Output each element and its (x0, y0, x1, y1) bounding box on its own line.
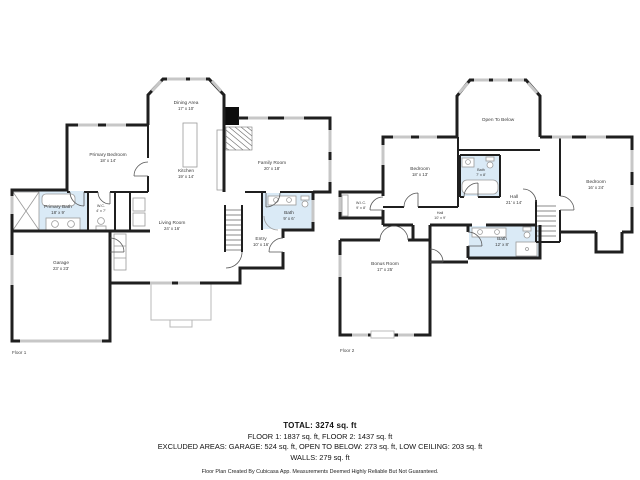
svg-text:18' x 14': 18' x 14' (100, 158, 116, 163)
svg-text:Bath: Bath (477, 168, 485, 172)
room-label-primary-bedroom: Primary Bedroom 18' x 14' (89, 152, 126, 163)
floor1-label: Floor 1 (12, 350, 27, 355)
floor-areas-text: FLOOR 1: 1837 sq. ft, FLOOR 2: 1437 sq. … (0, 432, 640, 441)
room-label-wc: W.C. 4' x 7' (96, 204, 106, 213)
room-label-bedroom-right: Bedroom 16' x 24' (586, 179, 605, 190)
svg-text:Open To Below: Open To Below (482, 117, 515, 123)
svg-text:10' x 9': 10' x 9' (434, 216, 446, 220)
floor-plan-svg: Dining Area 17' x 10' Primary Bedroom 18… (0, 0, 640, 480)
room-label-hall-left: Hall 10' x 9' (434, 211, 446, 220)
svg-text:4' x 7': 4' x 7' (96, 209, 106, 213)
svg-text:18' x 9': 18' x 9' (51, 210, 65, 215)
svg-text:W.C.: W.C. (97, 204, 105, 208)
svg-text:17' x 10': 17' x 10' (178, 106, 194, 111)
svg-text:7' x 8': 7' x 8' (476, 173, 486, 177)
svg-text:21' x 14': 21' x 14' (506, 200, 522, 205)
room-label-garage: Garage 23' x 23' (53, 260, 69, 271)
floor2-plan: Open To Below Bedroom 18' x 13' Bath 7' … (340, 80, 632, 353)
room-label-open-to-below: Open To Below (482, 117, 515, 123)
floor1-fireplace (224, 107, 239, 125)
floor1-deck (151, 284, 211, 327)
room-label-family-room: Family Room 20' x 18' (258, 160, 286, 171)
room-label-bedroom-left: Bedroom 18' x 13' (410, 166, 429, 177)
svg-text:23' x 23': 23' x 23' (53, 266, 69, 271)
summary-block: TOTAL: 3274 sq. ft FLOOR 1: 1837 sq. ft,… (0, 421, 640, 475)
room-label-bath-lower: Bath 12' x 8' (495, 236, 509, 247)
svg-text:17' x 25': 17' x 25' (377, 267, 393, 272)
total-area-text: TOTAL: 3274 sq. ft (0, 421, 640, 430)
svg-text:Hall: Hall (437, 211, 444, 215)
svg-text:W.I.C.: W.I.C. (356, 201, 366, 205)
walls-area-text: WALLS: 279 sq. ft (0, 453, 640, 462)
floor1-plan: Dining Area 17' x 10' Primary Bedroom 18… (12, 79, 330, 355)
floor2-bonus-threshold (371, 331, 394, 338)
floor1-stairs (226, 210, 241, 250)
excluded-areas-text: EXCLUDED AREAS: GARAGE: 524 sq. ft, OPEN… (0, 442, 640, 451)
svg-text:19' x 14': 19' x 14' (178, 174, 194, 179)
room-label-hall-center: Hall 21' x 14' (506, 194, 522, 205)
svg-text:16' x 24': 16' x 24' (588, 185, 604, 190)
room-label-bath-f1: Bath 9' x 6' (283, 210, 294, 221)
floor-plan-page: Dining Area 17' x 10' Primary Bedroom 18… (0, 0, 640, 480)
floor1-stair-hatch (226, 127, 252, 150)
svg-text:12' x 8': 12' x 8' (495, 242, 509, 247)
room-label-kitchen: Kitchen 19' x 14' (178, 168, 194, 179)
svg-text:9' x 8': 9' x 8' (356, 206, 366, 210)
room-label-bath-upper: Bath 7' x 8' (476, 168, 486, 177)
room-label-living-room: Living Room 24' x 16' (159, 220, 186, 231)
svg-text:18' x 13': 18' x 13' (412, 172, 428, 177)
svg-text:10' x 16': 10' x 16' (253, 242, 269, 247)
disclaimer-text: Floor Plan Created By Cubicasa App. Meas… (0, 469, 640, 475)
room-label-wic: W.I.C. 9' x 8' (356, 201, 366, 210)
room-label-bonus-room: Bonus Room 17' x 25' (371, 261, 399, 272)
room-label-entry: Entry 10' x 16' (253, 236, 269, 247)
floor2-label: Floor 2 (340, 348, 355, 353)
floor1-doors (70, 162, 283, 268)
svg-text:9' x 6': 9' x 6' (283, 216, 294, 221)
svg-text:20' x 18': 20' x 18' (264, 166, 280, 171)
room-label-dining: Dining Area 17' x 10' (174, 100, 199, 111)
svg-text:24' x 16': 24' x 16' (164, 226, 180, 231)
